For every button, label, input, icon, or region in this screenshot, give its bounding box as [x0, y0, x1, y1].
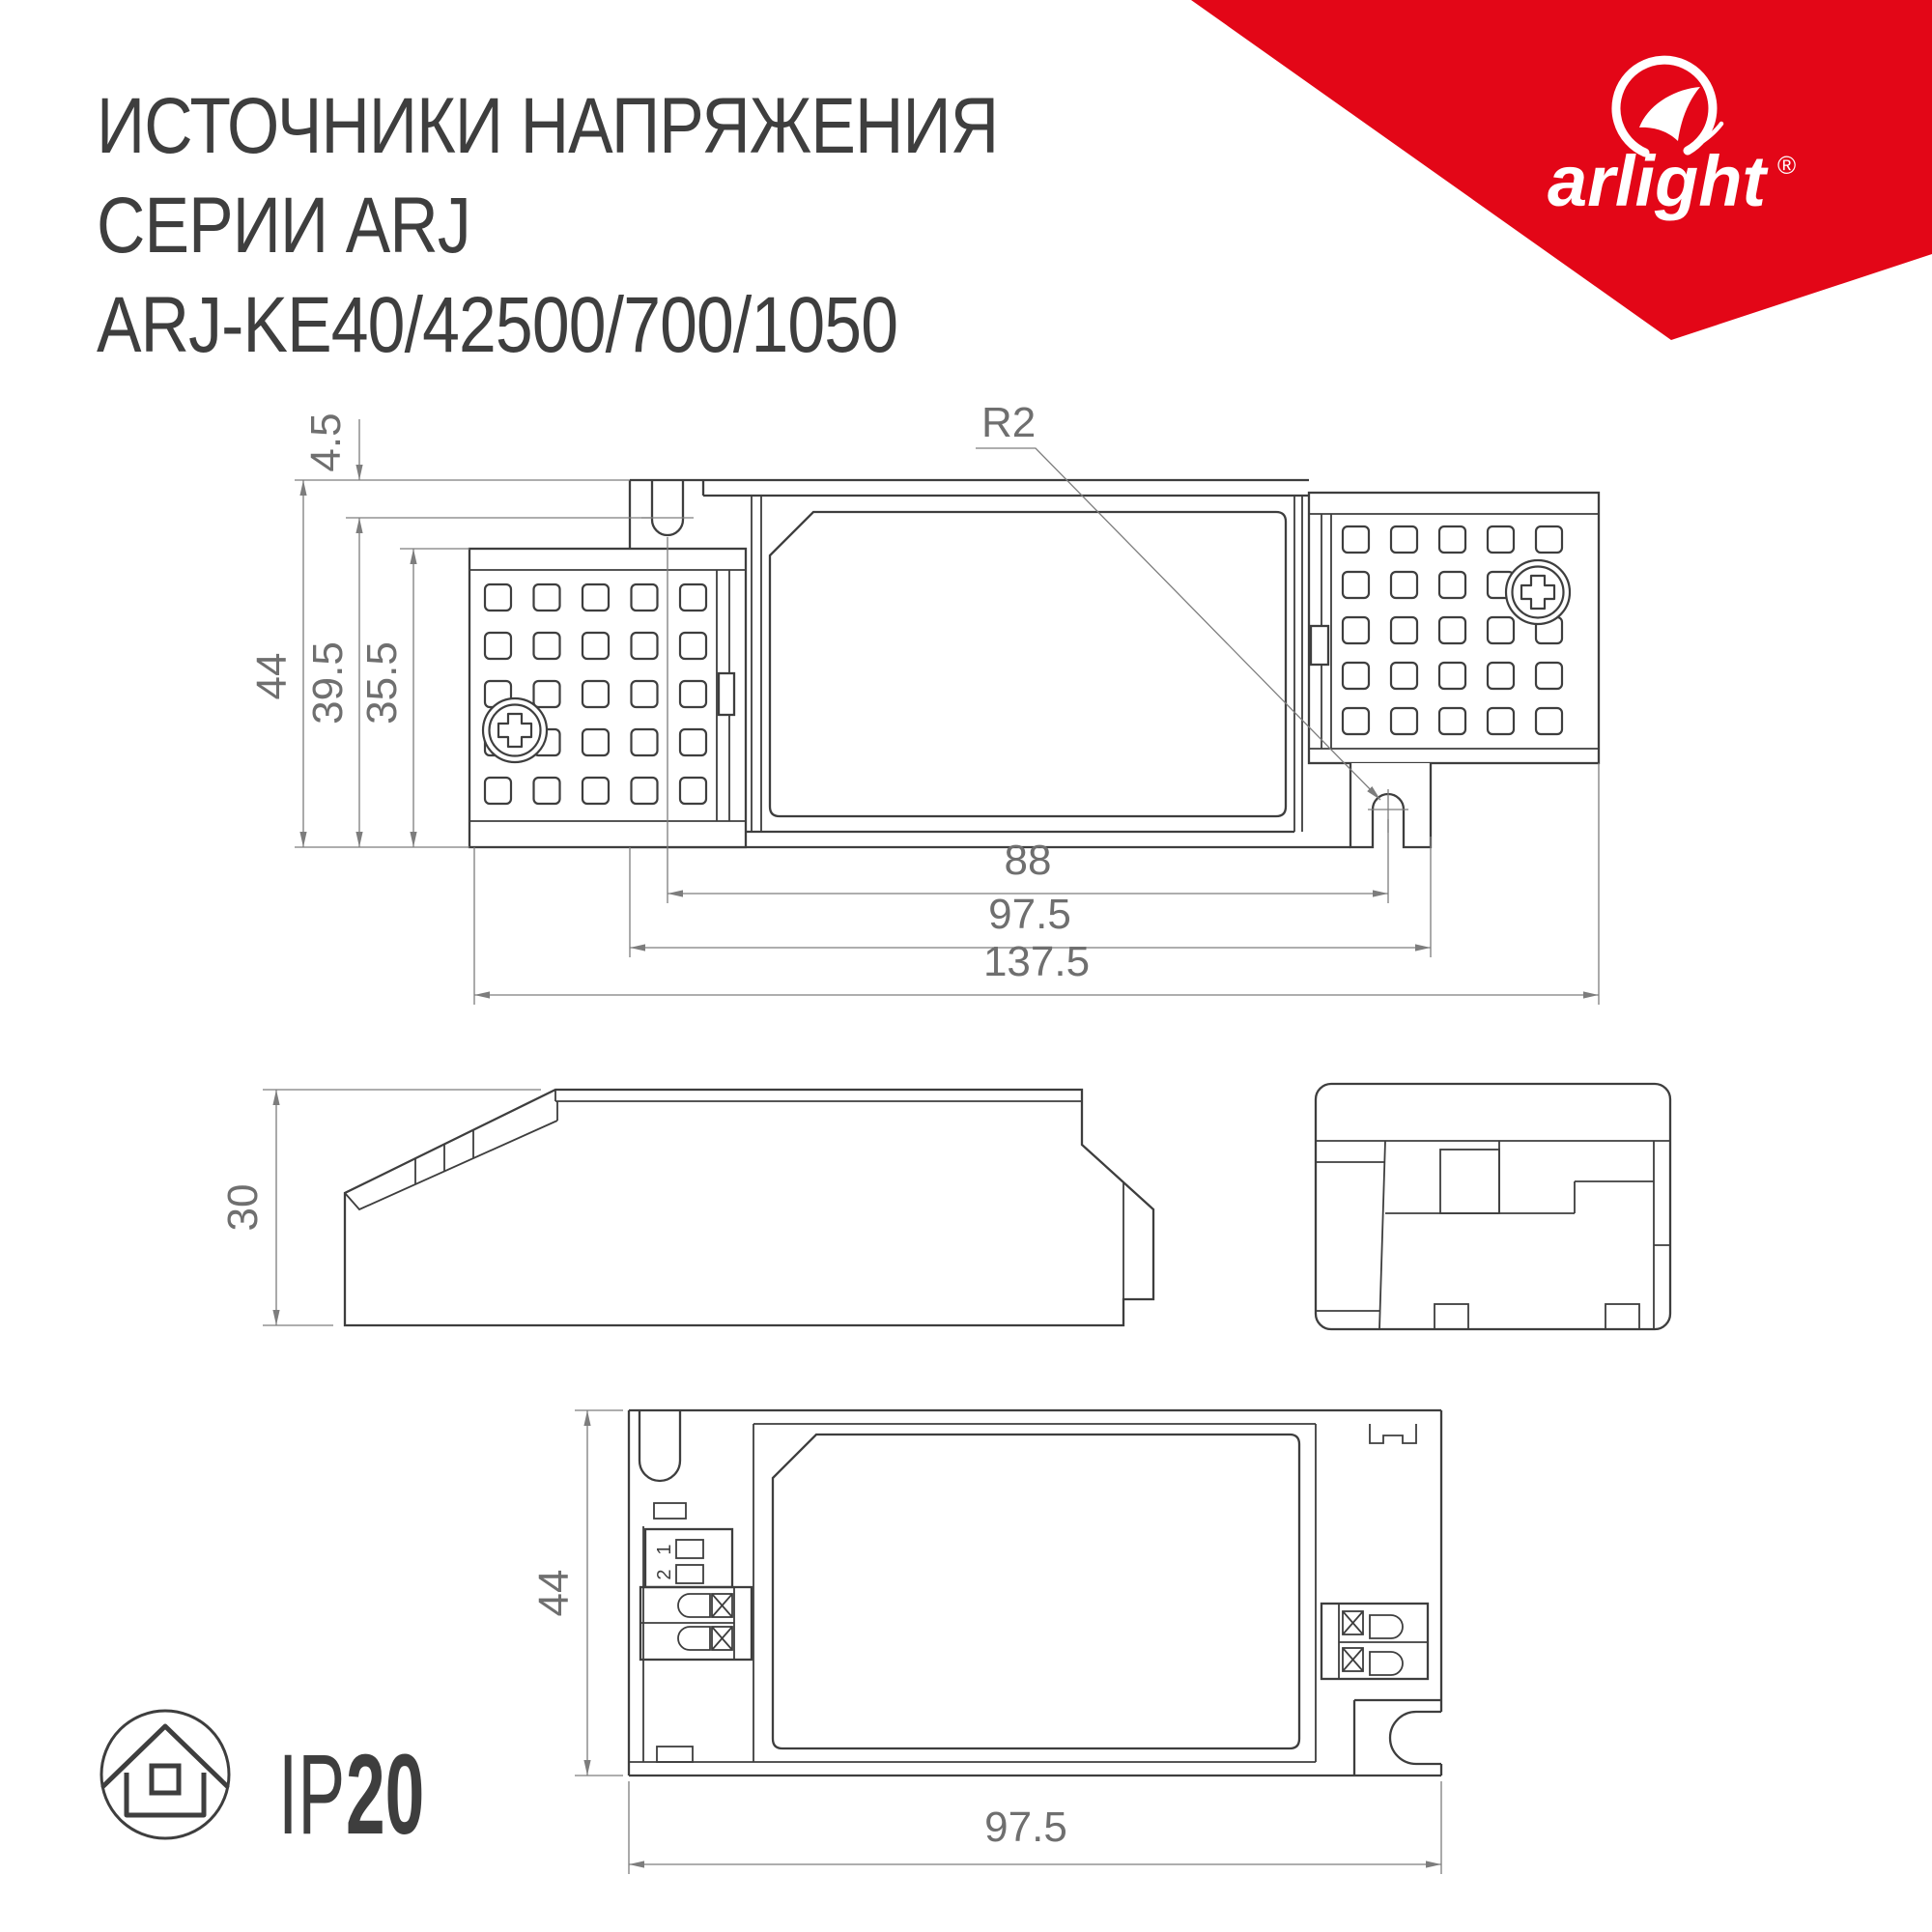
indoor-use-icon [101, 1711, 229, 1838]
house-window-icon [152, 1766, 179, 1793]
top-edge-tab-right [1370, 1424, 1416, 1443]
house-roof-icon [103, 1726, 227, 1786]
mount-slot-top-left [652, 480, 703, 535]
mount-slot-bottom-top-left [639, 1410, 686, 1519]
ip-rating-value: 20 [346, 1730, 424, 1858]
input-terminal-block [640, 1587, 752, 1660]
side-view-drawing [345, 1090, 1153, 1325]
output-terminal-block [1321, 1604, 1428, 1679]
side-view-dimensions: 30 [219, 1090, 541, 1325]
dip-label-1: 1 [654, 1544, 675, 1554]
dim-case-height: 30 [219, 1184, 267, 1232]
case-lid-recess [770, 512, 1286, 816]
ip-rating-prefix: IP [278, 1730, 345, 1858]
top-view-drawing [469, 480, 1599, 847]
dim-39-5: 39.5 [304, 641, 352, 724]
registered-trademark-symbol: ® [1777, 151, 1796, 180]
dim-slot-offset: 4.5 [302, 412, 350, 471]
phillips-screw-icon [483, 698, 547, 762]
mount-slot-bottom-right [1350, 763, 1431, 847]
dip-label-2: 2 [654, 1569, 675, 1579]
dim-slot-distance: 88 [1005, 837, 1052, 884]
mount-slot-bottom-right-keyhole [1354, 1700, 1441, 1776]
bottom-view-drawing: 1 2 [629, 1410, 1441, 1776]
dim-35-5: 35.5 [358, 641, 406, 724]
dip-switch: 1 2 [645, 1529, 732, 1587]
case-lid-recess-bottom [773, 1435, 1299, 1748]
technical-drawing-canvas: arlight ® [0, 0, 1932, 1932]
phillips-screw-icon [1506, 560, 1570, 624]
output-connector-block [1309, 493, 1599, 763]
arlight-wordmark: arlight [1548, 141, 1769, 221]
dim-overall-height: 44 [248, 653, 296, 700]
dim-bottom-height: 44 [530, 1570, 578, 1617]
end-view-drawing [1316, 1084, 1670, 1329]
bottom-edge-tab [657, 1747, 693, 1762]
dim-case-length: 97.5 [988, 891, 1071, 938]
dim-overall-length: 137.5 [983, 938, 1090, 985]
dim-radius-label: R2 [981, 399, 1036, 446]
datasheet-page: ИСТОЧНИКИ НАПРЯЖЕНИЯ СЕРИИ ARJ ARJ-KE40/… [0, 0, 1932, 1932]
dim-bottom-length: 97.5 [984, 1804, 1067, 1851]
ip-badge: IP 20 [101, 1711, 424, 1858]
brand-banner: arlight ® [1191, 0, 1932, 340]
